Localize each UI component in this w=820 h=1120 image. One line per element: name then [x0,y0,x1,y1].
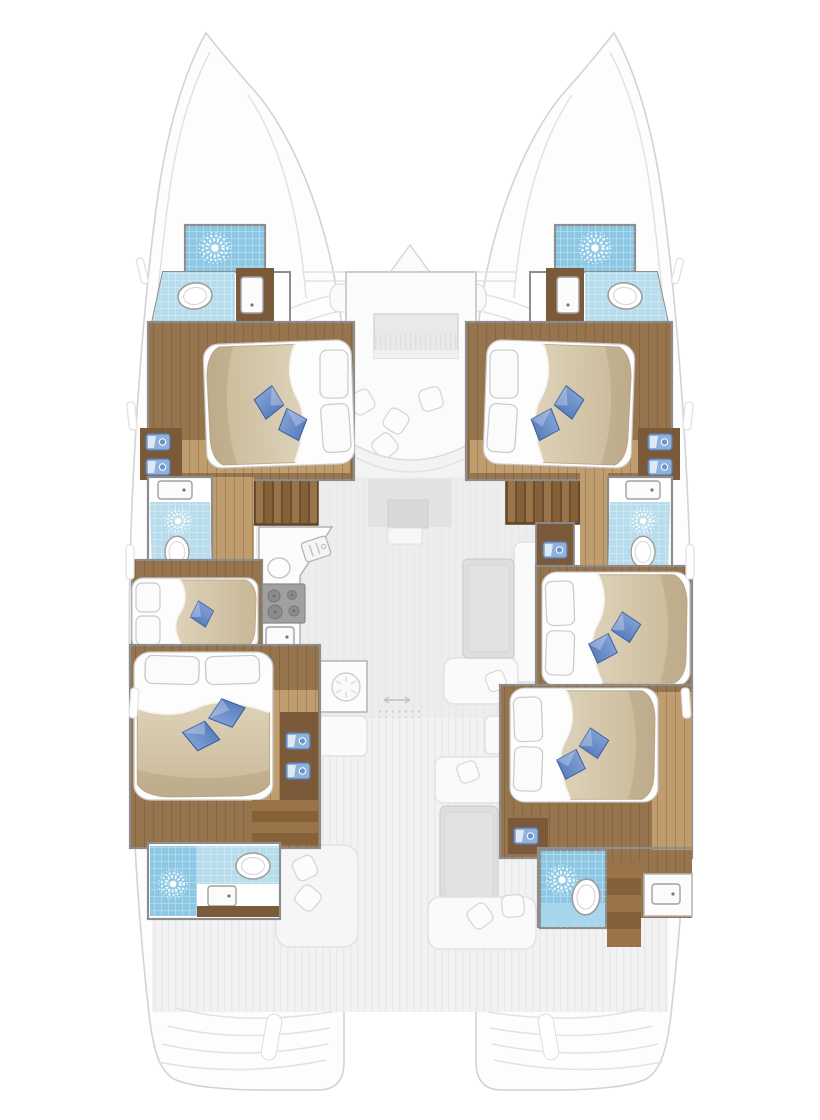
bed [132,578,258,650]
washbasin [652,884,680,904]
vanity-basin [146,434,170,450]
washbasin [208,886,236,906]
vanity-cabinet [197,906,279,917]
stbd-mid-head [580,470,672,575]
stbd-fore-head [530,268,668,323]
cabin-stairs [252,800,318,845]
bed [510,688,658,802]
vanity-basin [146,459,170,475]
catamaran-deck-plan [0,0,820,1120]
washbasin [241,277,263,313]
companionway-stairs-port [254,477,318,525]
toilet [236,853,270,879]
bed [483,339,635,468]
galley-hatch [332,673,360,701]
galley-round-sink [268,558,290,578]
fore-lounge-step [374,314,458,358]
vanity-basin [286,733,310,749]
port-mid-cabin [132,560,262,652]
vanity-cabinet [280,712,318,800]
stbd-aft-cabin [500,685,692,858]
stbd-mid-cabin [536,566,692,688]
washbasin [158,481,192,499]
port-aft-head [148,843,280,919]
stbd-fore-cabin [466,322,680,480]
port-fore-shower [185,225,265,272]
bed [203,339,355,468]
galley-stove [262,584,305,623]
vanity-basin [543,542,567,558]
fore-lounge [343,272,476,480]
cabin-stairs [607,862,641,947]
washbasin [626,481,660,499]
vanity-basin [286,763,310,779]
toilet [631,536,655,567]
vanity-basin [648,459,672,475]
stbd-fore-shower [555,225,635,272]
bed [542,572,690,686]
port-fore-head [152,268,290,323]
vanity-basin [648,434,672,450]
port-aft-cabin [130,645,320,848]
cockpit-sunpad [276,845,358,947]
bed [134,652,273,800]
vanity-basin [514,828,538,844]
cockpit-fwd-bench-port [315,716,367,756]
port-fore-cabin [140,322,355,480]
washbasin [557,277,579,313]
